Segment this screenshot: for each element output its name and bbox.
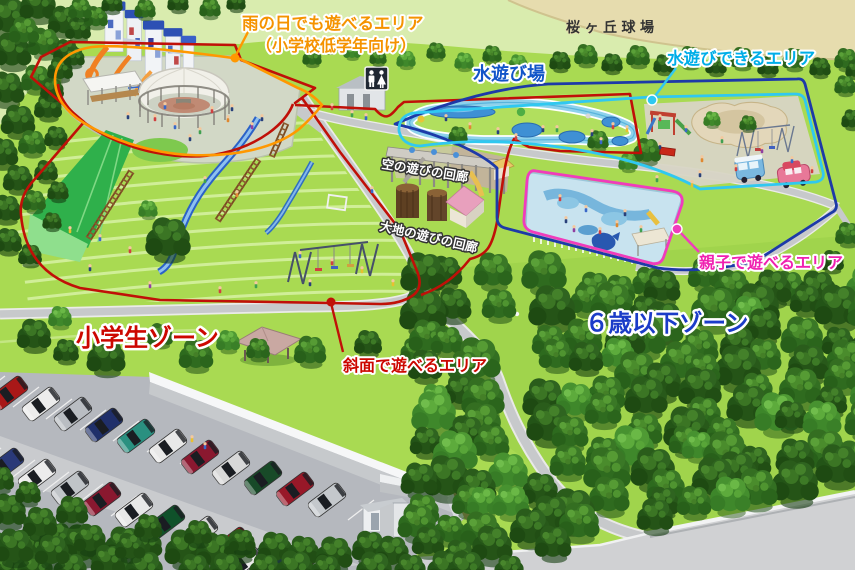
svg-text:６歳以下ゾーン: ６歳以下ゾーン bbox=[585, 309, 748, 336]
svg-text:雨の日でも遊べるエリア: 雨の日でも遊べるエリア bbox=[242, 13, 424, 33]
svg-text:（小学校低学年向け）: （小学校低学年向け） bbox=[256, 36, 416, 55]
svg-text:桜ヶ丘球場: 桜ヶ丘球場 bbox=[566, 19, 659, 35]
svg-text:水遊び場: 水遊び場 bbox=[473, 63, 545, 84]
svg-text:斜面で遊べるエリア: 斜面で遊べるエリア bbox=[342, 356, 487, 375]
svg-text:小学生ゾーン: 小学生ゾーン bbox=[76, 324, 219, 352]
svg-text:水遊びできるエリア: 水遊びできるエリア bbox=[667, 48, 815, 68]
svg-text:親子で遊べるエリア: 親子で遊べるエリア bbox=[699, 253, 843, 272]
